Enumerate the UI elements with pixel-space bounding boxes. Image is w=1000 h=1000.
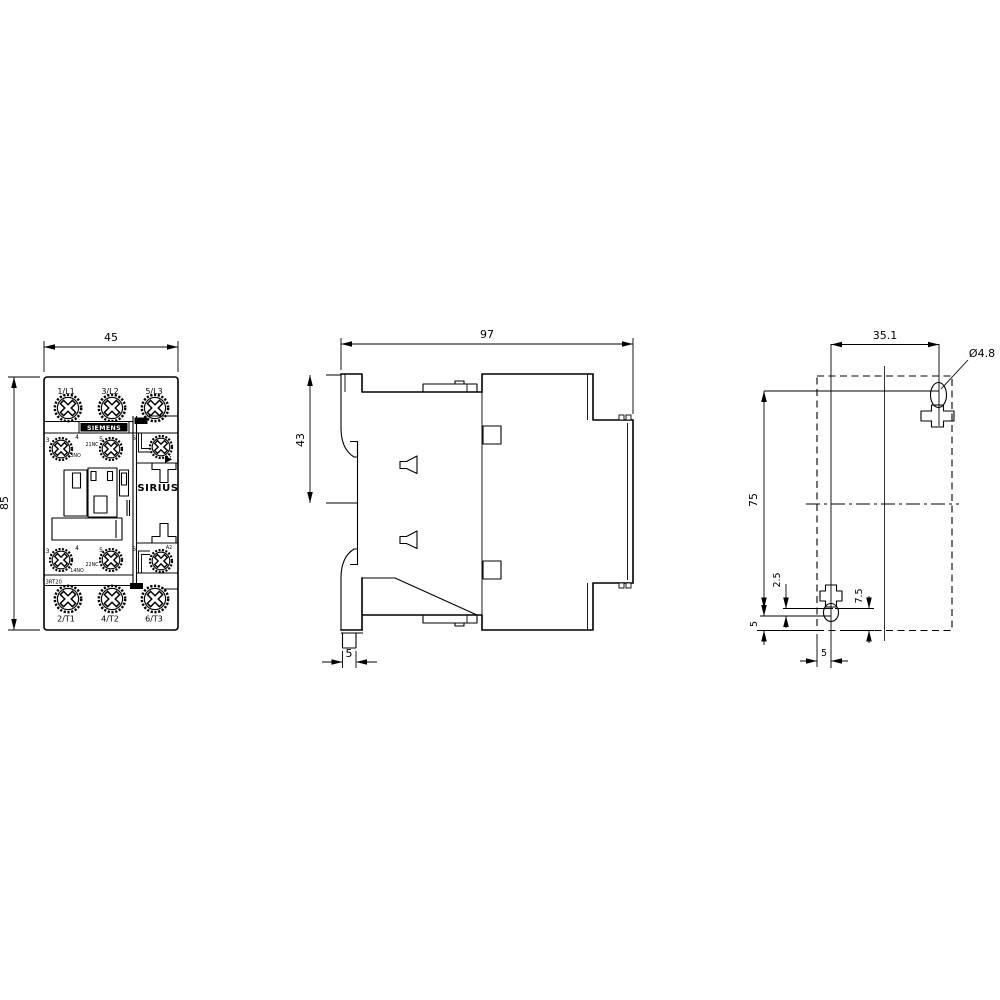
front-width-dimension: 45	[44, 331, 178, 372]
terminal-2T1-label: 2/T1	[57, 615, 75, 624]
drill-offset-7-5-dimension: 7.5	[854, 588, 872, 643]
aux-label-13NO: 13NO	[67, 453, 81, 459]
side-depth-dim-text: 97	[480, 328, 494, 341]
coil-a2-label: A2	[166, 545, 172, 551]
coil-terminal-a1: A1	[137, 433, 179, 483]
bottom-terminal-labels: 2/T1 4/T2 6/T3	[57, 615, 163, 624]
hole-diameter-callout: Ø4.8	[941, 347, 995, 389]
side-square-bottom	[483, 561, 501, 579]
keyhole-slot-top	[921, 383, 954, 428]
type-code-label: 3RT20	[46, 580, 62, 586]
terminal-4T2-label: 4/T2	[101, 615, 119, 624]
aux-row-bottom: 3 4 5 6 22NC 14NO	[46, 545, 137, 574]
brand-plate: SIEMENS	[79, 422, 129, 434]
hole-axis-lines	[757, 344, 939, 668]
brand-logo-text: SIEMENS	[87, 425, 121, 432]
coil-terminal-a2: A2	[137, 524, 179, 574]
aux-digit: 4	[75, 545, 79, 552]
side-square-top	[483, 426, 501, 444]
side-foot-dim-text: 5	[346, 647, 353, 660]
front-mechanism	[52, 468, 130, 540]
drill-spacing-y-text: 75	[747, 493, 760, 507]
aux-label-22NC: 22NC	[85, 562, 99, 568]
screw-terminal-4T2	[99, 586, 125, 612]
top-terminal-screws	[55, 395, 168, 421]
drill-offset-5-vertical-text: 5	[749, 621, 760, 627]
side-profile	[341, 374, 633, 648]
drilling-plan: 35.1 Ø4.8 75 2.5 7.5	[747, 329, 995, 668]
drill-offset-5-vertical-dimension: 5	[749, 605, 767, 645]
aux-digit: 5	[99, 547, 103, 554]
aux-digit: 3	[46, 437, 50, 444]
front-width-dim-text: 45	[104, 331, 118, 344]
drill-offset-5-horizontal-text: 5	[821, 648, 827, 659]
side-funnel-bottom	[400, 531, 417, 549]
series-label: SIRIUS	[137, 483, 178, 494]
screw-terminal-3L2	[99, 395, 125, 421]
aux-label-21NC: 21NC	[85, 442, 99, 448]
side-face-screws	[619, 415, 631, 588]
drill-spacing-y-dimension: 75	[747, 391, 767, 609]
screw-aux-14	[50, 549, 72, 571]
drill-offset-7-5-text: 7.5	[854, 588, 865, 603]
side-rail-dimension: 43	[294, 375, 357, 503]
side-funnel-top	[400, 456, 417, 474]
top-mount-tab	[135, 418, 148, 425]
aux-row-top: 3 4 5 6 13NO 21NC	[46, 434, 137, 460]
aux-digit: 6	[132, 435, 136, 442]
bottom-terminal-screws	[55, 586, 168, 612]
screw-terminal-5L3	[142, 395, 168, 421]
aux-label-14NO: 14NO	[70, 568, 84, 574]
aux-digit: 4	[75, 434, 79, 441]
dimension-drawing: 45 85 1/L1 3/L2 5/L3	[0, 0, 1000, 1000]
screw-terminal-2T1	[55, 586, 81, 612]
drill-spacing-x-text: 35.1	[873, 329, 898, 342]
aux-digit: 3	[46, 548, 50, 555]
screw-coil-a2	[150, 550, 172, 572]
bottom-mount-tab	[130, 583, 143, 589]
side-rail-dim-text: 43	[294, 433, 307, 447]
screw-terminal-6T3	[142, 586, 168, 612]
front-view: 45 85 1/L1 3/L2 5/L3	[0, 331, 179, 630]
drill-offset-5-horizontal-dimension: 5	[800, 634, 848, 667]
screw-coil-a1	[150, 436, 172, 458]
screw-aux-22	[100, 549, 122, 571]
screw-aux-21	[100, 438, 122, 460]
drill-offset-2-5-text: 2.5	[772, 572, 783, 587]
screw-terminal-1L1	[55, 395, 81, 421]
aux-digit: 5	[99, 436, 103, 443]
drill-offset-2-5-dimension: 2.5	[772, 572, 789, 628]
terminal-6T3-label: 6/T3	[145, 615, 163, 624]
side-foot-dimension: 5	[322, 647, 377, 668]
dimension-drawing-page: 45 85 1/L1 3/L2 5/L3	[0, 0, 1000, 1000]
front-height-dim-text: 85	[0, 496, 11, 510]
drill-spacing-x-dimension: 35.1	[831, 329, 939, 347]
aux-digit: 6	[132, 546, 136, 553]
coil-a1-label: A1	[166, 456, 172, 462]
side-depth-dimension: 97	[341, 328, 633, 414]
side-view: 97 43 5	[294, 328, 633, 668]
front-height-dimension: 85	[0, 377, 40, 630]
hole-diameter-text: Ø4.8	[969, 347, 995, 360]
